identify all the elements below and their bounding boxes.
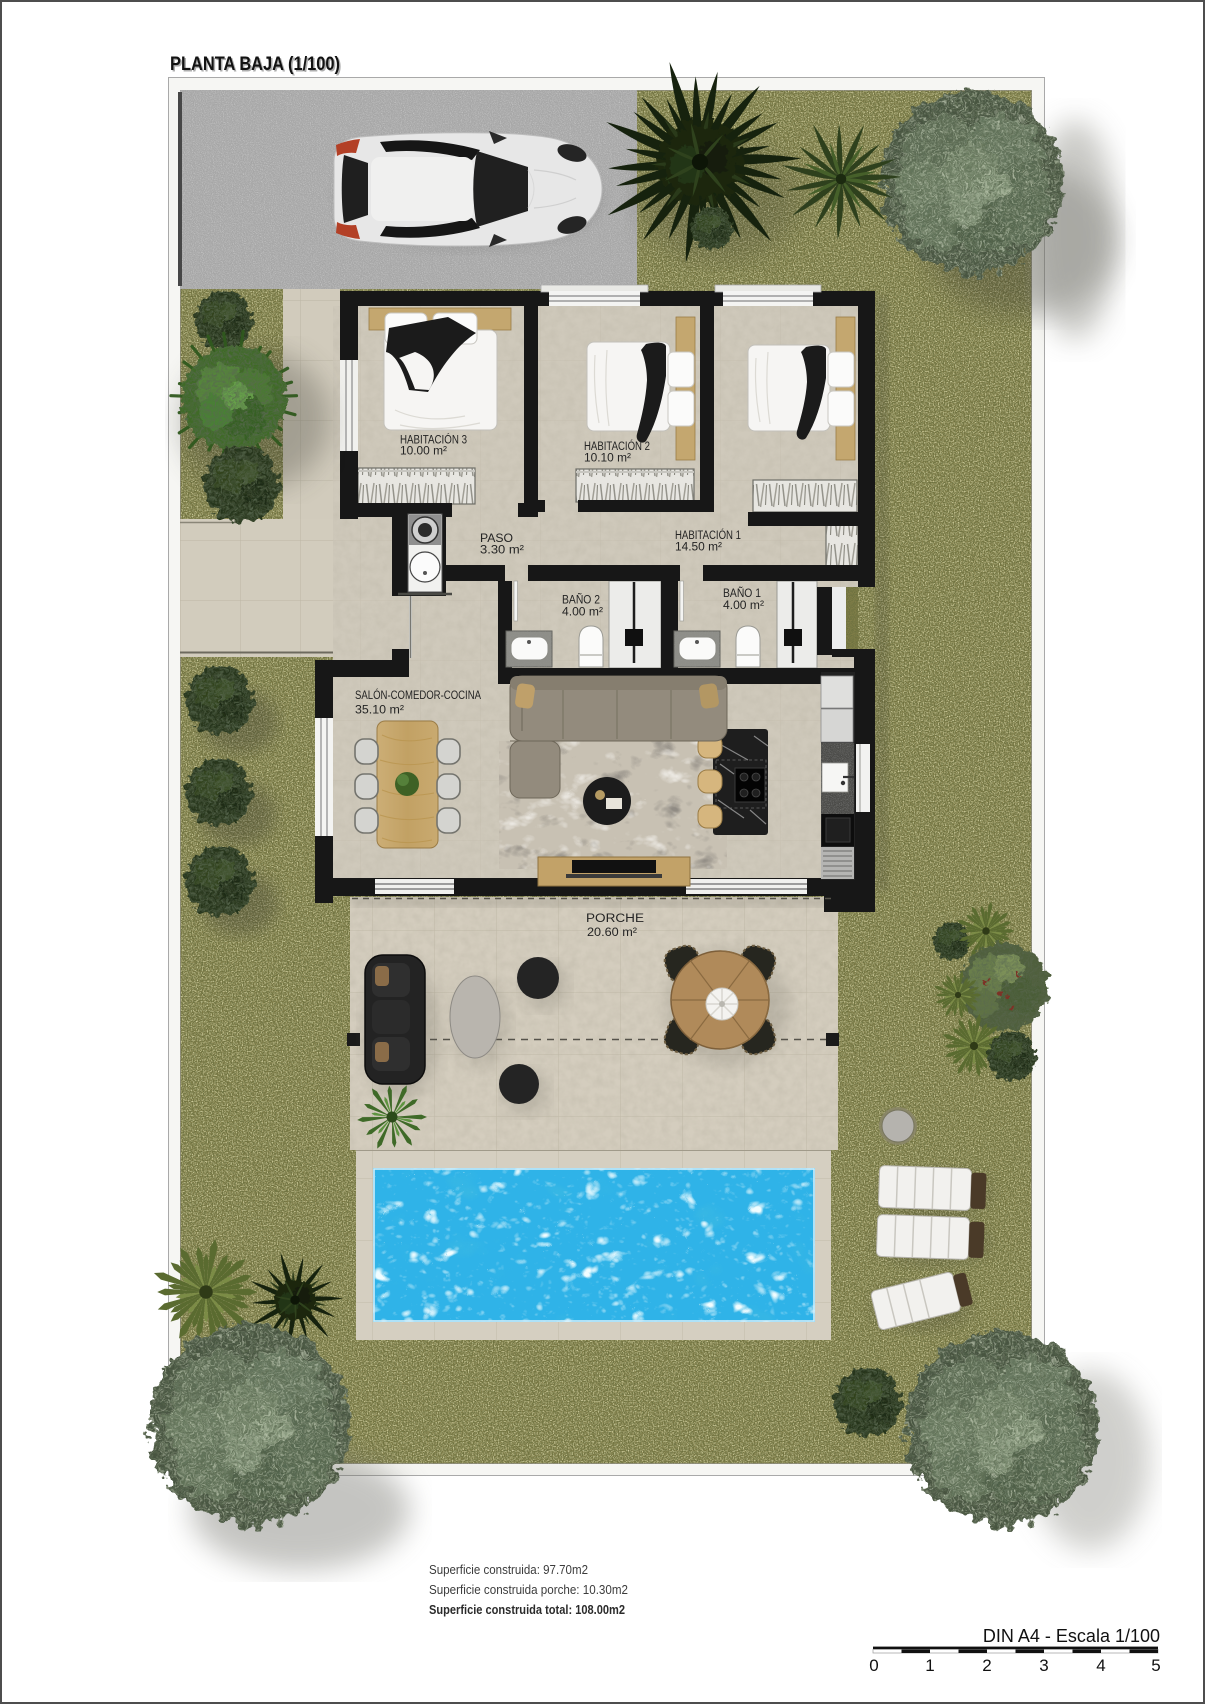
svg-text:2: 2 (982, 1656, 991, 1675)
svg-text:0: 0 (869, 1656, 878, 1675)
svg-text:35.10 m²: 35.10 m² (355, 703, 404, 717)
svg-text:4: 4 (1096, 1656, 1105, 1675)
svg-text:PLANTA BAJA (1/100): PLANTA BAJA (1/100) (170, 54, 340, 75)
svg-text:Superficie construida: 97.70m2: Superficie construida: 97.70m2 (429, 1563, 588, 1577)
svg-text:3.30 m²: 3.30 m² (480, 543, 524, 557)
svg-text:1: 1 (925, 1656, 934, 1675)
svg-text:14.50 m²: 14.50 m² (675, 540, 722, 554)
svg-text:4.00 m²: 4.00 m² (723, 598, 764, 612)
svg-text:10.10 m²: 10.10 m² (584, 451, 631, 465)
svg-text:3: 3 (1039, 1656, 1048, 1675)
svg-text:DIN A4 - Escala 1/100: DIN A4 - Escala 1/100 (983, 1626, 1160, 1646)
svg-text:20.60 m²: 20.60 m² (587, 925, 637, 939)
svg-text:PORCHE: PORCHE (586, 911, 644, 925)
svg-text:Superficie construida total: 1: Superficie construida total: 108.00m2 (429, 1603, 625, 1617)
svg-text:10.00 m²: 10.00 m² (400, 444, 447, 458)
svg-text:SALÓN-COMEDOR-COCINA: SALÓN-COMEDOR-COCINA (355, 687, 482, 702)
svg-text:4.00 m²: 4.00 m² (562, 605, 603, 619)
svg-text:Superficie construida porche:: Superficie construida porche: 10.30m2 (429, 1583, 628, 1597)
svg-text:5: 5 (1151, 1656, 1160, 1675)
